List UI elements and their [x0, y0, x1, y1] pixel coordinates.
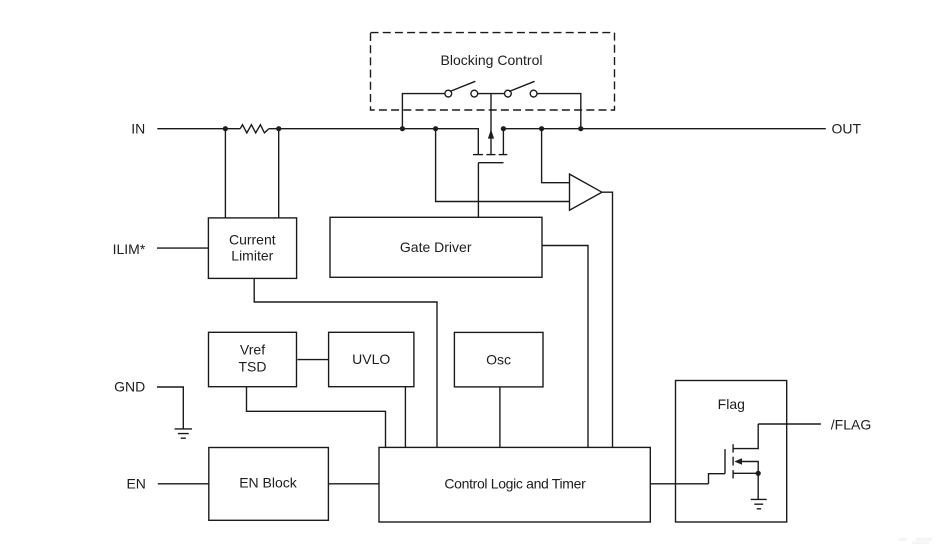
svg-text:GND: GND — [114, 378, 145, 394]
svg-text:VrefTSD: VrefTSD — [239, 342, 267, 375]
svg-text:/FLAG: /FLAG — [831, 416, 871, 432]
svg-text:CurrentLimiter: CurrentLimiter — [229, 231, 276, 263]
svg-text:Flag: Flag — [718, 396, 745, 412]
svg-text:IN: IN — [131, 120, 145, 136]
svg-text:Blocking Control: Blocking Control — [441, 52, 543, 68]
svg-text:OUT: OUT — [832, 120, 862, 136]
svg-text:Gate Driver: Gate Driver — [400, 239, 472, 255]
svg-text:Osc: Osc — [486, 351, 511, 367]
svg-text:UVLO: UVLO — [352, 351, 390, 367]
svg-text:EN Block: EN Block — [239, 475, 298, 491]
svg-text:ILIM*: ILIM* — [113, 241, 146, 257]
svg-text:Control Logic and Timer: Control Logic and Timer — [444, 475, 586, 491]
svg-text:EN: EN — [126, 476, 145, 492]
